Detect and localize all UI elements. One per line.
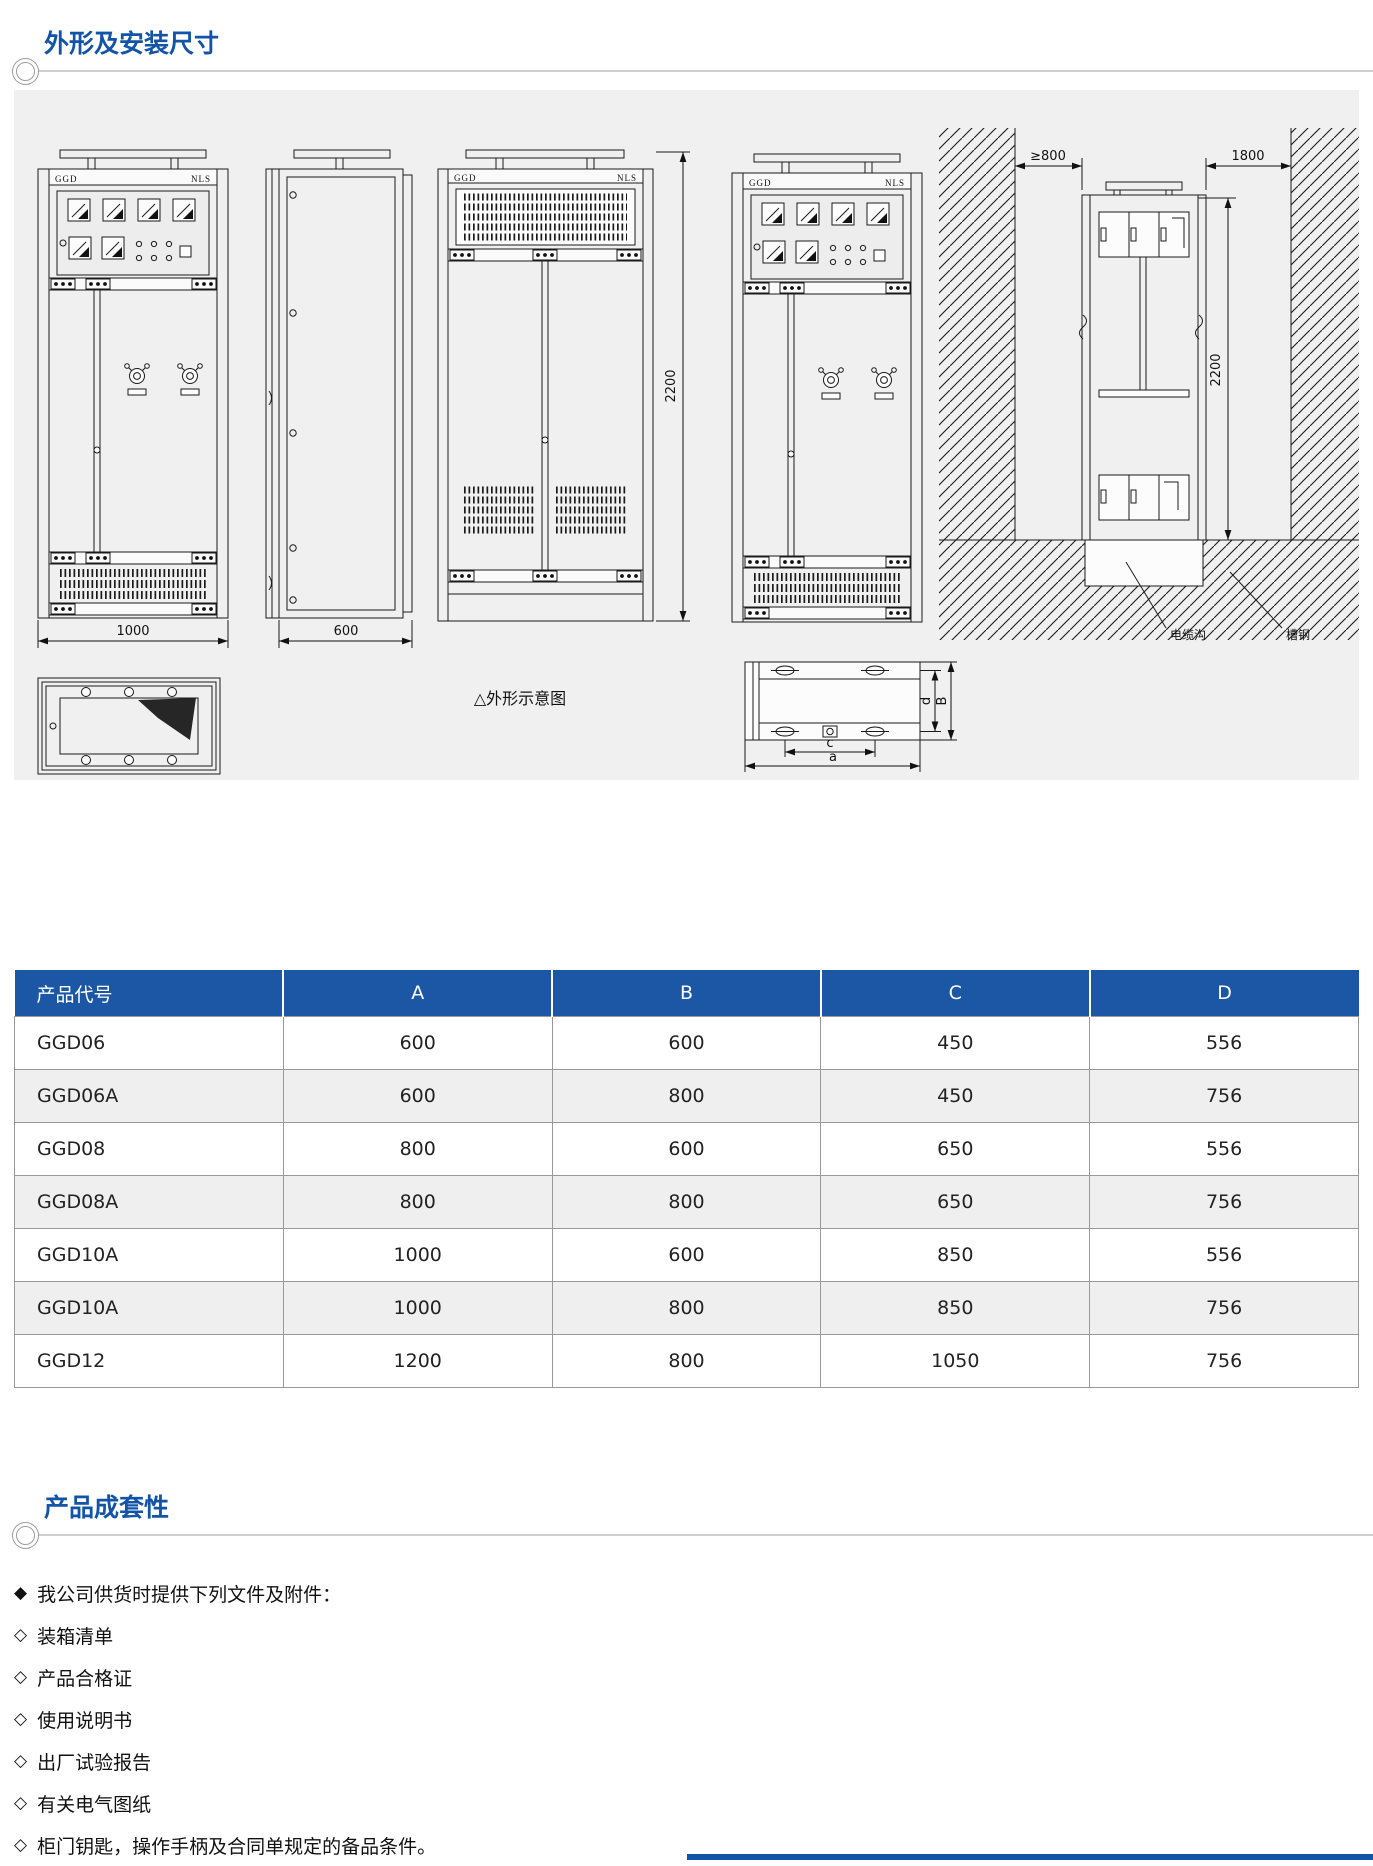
table-row: GGD06 600 600 450 556: [15, 1017, 1359, 1070]
gland-plate-drawing: [38, 678, 220, 774]
cell: 850: [821, 1229, 1090, 1282]
dimension-label-b: B: [935, 697, 950, 706]
diamond-icon: ◇: [14, 1837, 27, 1854]
list-item-text: 产品合格证: [37, 1664, 132, 1691]
list-item-text: 装箱清单: [37, 1622, 113, 1649]
list-item: ◇ 出厂试验报告: [14, 1740, 1359, 1782]
list-item-text: 出厂试验报告: [37, 1748, 151, 1775]
cell: 800: [552, 1176, 821, 1229]
list-item: ◇ 有关电气图纸: [14, 1782, 1359, 1824]
front-view-drawing: 1000: [38, 150, 228, 648]
cell: 800: [552, 1070, 821, 1123]
cell-product-code: GGD10A: [15, 1229, 284, 1282]
section-completeness-header: 产品成套性: [0, 1476, 1373, 1550]
column-header-product-code: 产品代号: [15, 970, 284, 1017]
cell: 600: [552, 1229, 821, 1282]
section-dimensions-header: 外形及安装尺寸: [0, 12, 1373, 86]
dimension-label-a: a: [829, 750, 837, 765]
cell-product-code: GGD12: [15, 1335, 284, 1388]
table-row: GGD08 800 600 650 556: [15, 1123, 1359, 1176]
cell: 450: [821, 1070, 1090, 1123]
cell: 1000: [283, 1229, 552, 1282]
column-header-d: D: [1090, 970, 1359, 1017]
dimension-label-side-depth: 600: [334, 624, 359, 639]
list-item: ◇ 产品合格证: [14, 1656, 1359, 1698]
header-divider: [38, 70, 1373, 72]
cell: 800: [552, 1335, 821, 1388]
cell: 600: [283, 1017, 552, 1070]
column-header-a: A: [283, 970, 552, 1017]
column-header-b: B: [552, 970, 821, 1017]
cell: 1000: [283, 1282, 552, 1335]
drawings-panel: GGD NLS: [14, 90, 1359, 780]
cell: 450: [821, 1017, 1090, 1070]
dimension-label-d: d: [919, 697, 934, 705]
ring-icon: [12, 1522, 39, 1549]
page-title: 外形及安装尺寸: [44, 24, 219, 60]
table-row: GGD08A 800 800 650 756: [15, 1176, 1359, 1229]
base-frame-drawing: c a d B: [745, 662, 957, 772]
header-divider: [38, 1534, 1373, 1536]
ring-inner-icon: [16, 1526, 35, 1545]
list-item-text: 柜门钥匙，操作手柄及合同单规定的备品条件。: [37, 1832, 436, 1859]
cell: 600: [552, 1017, 821, 1070]
diamond-icon: ◇: [14, 1753, 27, 1770]
cell-product-code: GGD06A: [15, 1070, 284, 1123]
list-item-text: 使用说明书: [37, 1706, 132, 1733]
diamond-icon: ◇: [14, 1669, 27, 1686]
cell: 850: [821, 1282, 1090, 1335]
callout-channel-steel: 槽钢: [1286, 628, 1310, 642]
cell: 756: [1090, 1282, 1359, 1335]
dimension-label-cabinet-height: 2200: [664, 369, 679, 402]
technical-drawings: GGD NLS: [14, 90, 1359, 780]
cell: 756: [1090, 1070, 1359, 1123]
front-view-drawing-2: [732, 154, 922, 622]
table-header-row: 产品代号 A B C D: [15, 970, 1359, 1017]
cell: 556: [1090, 1017, 1359, 1070]
list-intro-text: 我公司供货时提供下列文件及附件：: [37, 1580, 341, 1607]
side-view-drawing: 600: [266, 150, 412, 648]
column-header-c: C: [821, 970, 1090, 1017]
table-row: GGD06A 600 800 450 756: [15, 1070, 1359, 1123]
callout-cable-trench: 电缆沟: [1170, 628, 1206, 642]
cell-product-code: GGD08A: [15, 1176, 284, 1229]
cell: 1200: [283, 1335, 552, 1388]
ring-icon: [12, 58, 39, 85]
diamond-icon: ◇: [14, 1711, 27, 1728]
list-item-text: 有关电气图纸: [37, 1790, 151, 1817]
diamond-icon: ◇: [14, 1795, 27, 1812]
section-title: 产品成套性: [44, 1488, 169, 1524]
cell: 1050: [821, 1335, 1090, 1388]
cell: 756: [1090, 1335, 1359, 1388]
filled-diamond-icon: ◆: [14, 1585, 27, 1602]
diamond-icon: ◇: [14, 1627, 27, 1644]
footer-accent-bar: [687, 1854, 1373, 1860]
cell: 650: [821, 1176, 1090, 1229]
cell: 800: [283, 1176, 552, 1229]
dimension-label-install-height: 2200: [1209, 353, 1224, 386]
cell: 556: [1090, 1123, 1359, 1176]
cell: 600: [552, 1123, 821, 1176]
installation-drawing: ≥800 1800 2200 电缆沟 槽钢: [939, 128, 1359, 642]
rear-view-drawing: 2200: [438, 150, 690, 621]
dimensions-table: 产品代号 A B C D GGD06 600 600 450 556 GGD06…: [14, 970, 1359, 1388]
list-intro: ◆ 我公司供货时提供下列文件及附件：: [14, 1572, 1359, 1614]
cell: 600: [283, 1070, 552, 1123]
dimension-label-front-width: 1000: [116, 624, 149, 639]
cell-product-code: GGD08: [15, 1123, 284, 1176]
table-row: GGD12 1200 800 1050 756: [15, 1335, 1359, 1388]
cell-product-code: GGD06: [15, 1017, 284, 1070]
list-item: ◇ 装箱清单: [14, 1614, 1359, 1656]
dimension-label-c: c: [826, 736, 833, 751]
dimension-label-wall-clearance: ≥800: [1030, 149, 1066, 164]
cell: 556: [1090, 1229, 1359, 1282]
cell-product-code: GGD10A: [15, 1282, 284, 1335]
cell: 756: [1090, 1176, 1359, 1229]
list-item: ◇ 使用说明书: [14, 1698, 1359, 1740]
completeness-list: ◆ 我公司供货时提供下列文件及附件： ◇ 装箱清单 ◇ 产品合格证 ◇ 使用说明…: [14, 1572, 1359, 1866]
ring-inner-icon: [16, 62, 35, 81]
table-row: GGD10A 1000 800 850 756: [15, 1282, 1359, 1335]
table-row: GGD10A 1000 600 850 556: [15, 1229, 1359, 1282]
cell: 800: [552, 1282, 821, 1335]
diagram-caption: △外形示意图: [474, 689, 566, 708]
dimension-label-rear-aisle: 1800: [1231, 149, 1264, 164]
cell: 800: [283, 1123, 552, 1176]
cell: 650: [821, 1123, 1090, 1176]
